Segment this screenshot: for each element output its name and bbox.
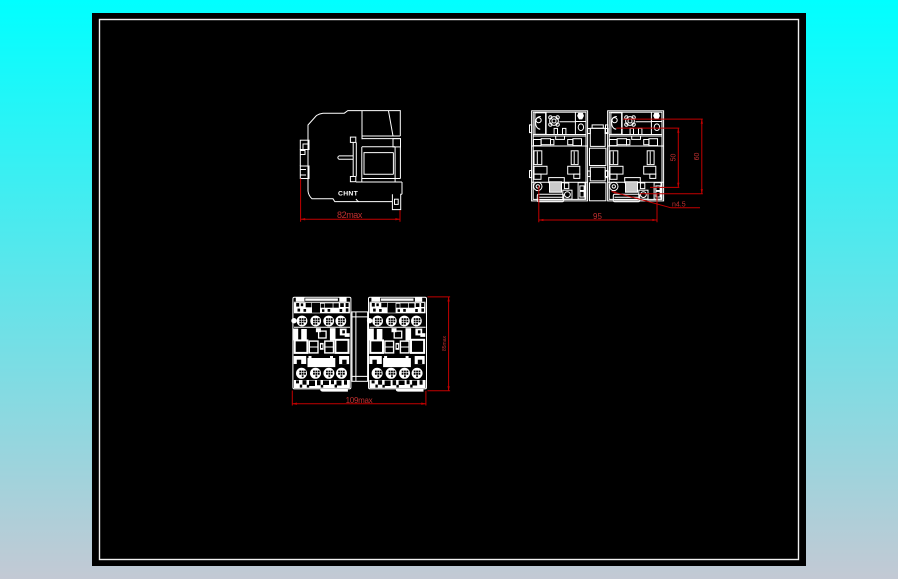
svg-text:50: 50	[671, 154, 678, 162]
svg-text:n4.5: n4.5	[672, 202, 686, 209]
svg-text:82max: 82max	[337, 210, 363, 220]
svg-text:60: 60	[694, 153, 701, 161]
svg-text:109max: 109max	[346, 396, 373, 405]
svg-text:CHNT: CHNT	[338, 191, 359, 198]
svg-text:85max: 85max	[442, 336, 448, 352]
svg-text:95: 95	[593, 212, 602, 221]
